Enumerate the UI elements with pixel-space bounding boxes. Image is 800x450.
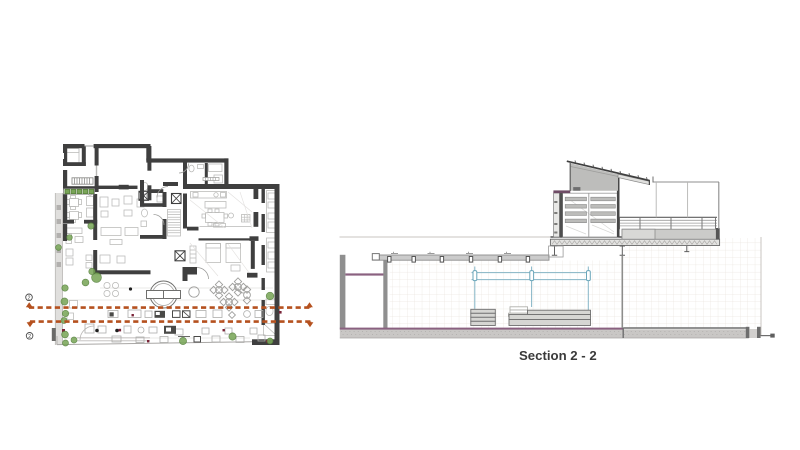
svg-text:2: 2: [28, 334, 31, 340]
svg-text:2: 2: [28, 296, 31, 302]
